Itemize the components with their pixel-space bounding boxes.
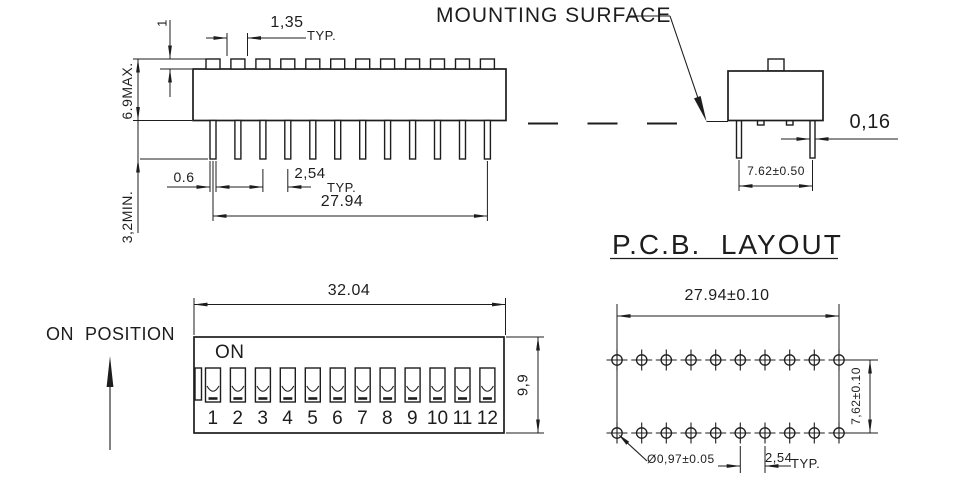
switch-number-3: 3	[257, 409, 268, 428]
switch-number-5: 5	[307, 409, 318, 428]
switch-number-11: 11	[453, 409, 473, 428]
switch-number-4: 4	[282, 409, 293, 428]
dim-pin-thickness: 0,16	[850, 112, 891, 132]
switch-number-10: 10	[427, 409, 448, 428]
dim-front-width: 32.04	[328, 283, 371, 299]
dim-hole-span: 27.94±0.10	[685, 288, 770, 304]
switch-number-12: 12	[477, 409, 498, 428]
on-label: ON	[215, 343, 245, 362]
dim-hole-pitch: 2,54	[765, 451, 792, 464]
dim-pin-pitch: 2,54	[294, 166, 325, 181]
switch-number-1: 1	[207, 409, 218, 428]
switch-number-6: 6	[332, 409, 343, 428]
pcb-title: P.C.B. LAYOUT	[612, 231, 843, 259]
dim-pin-min-length: 3,2MIN.	[120, 191, 134, 244]
dim-bump-width: 1,35	[270, 15, 303, 31]
switch-number-9: 9	[407, 409, 418, 428]
mounting-surface-label: MOUNTING SURFACE	[436, 5, 671, 26]
switch-number-7: 7	[357, 409, 368, 428]
switch-number-2: 2	[232, 409, 243, 428]
dim-hole-pitch-typ: TYP.	[791, 457, 820, 470]
side-view	[133, 20, 506, 233]
switch-number-8: 8	[382, 409, 393, 428]
on-position-label: ON POSITION	[46, 325, 175, 343]
dim-bump-width-typ: TYP.	[307, 29, 336, 42]
dim-front-height: 9,9	[516, 374, 531, 396]
dim-pin-width: 0.6	[174, 170, 195, 184]
dim-hole-diameter: Ø0,97±0.05	[647, 453, 715, 465]
technical-drawing-dip-switch: 1 1,35 TYP. 6.9MAX. 3,2MIN. 0.6 2,54 TYP…	[0, 0, 960, 488]
dim-pcb-row-pitch: 7,62±0.10	[850, 367, 862, 425]
dim-bump-height: 1	[156, 19, 169, 27]
dim-body-height: 6.9MAX.	[120, 62, 134, 119]
dim-pin-span: 27.94	[321, 194, 364, 210]
dim-end-row-pitch: 7.62±0.50	[747, 165, 805, 177]
